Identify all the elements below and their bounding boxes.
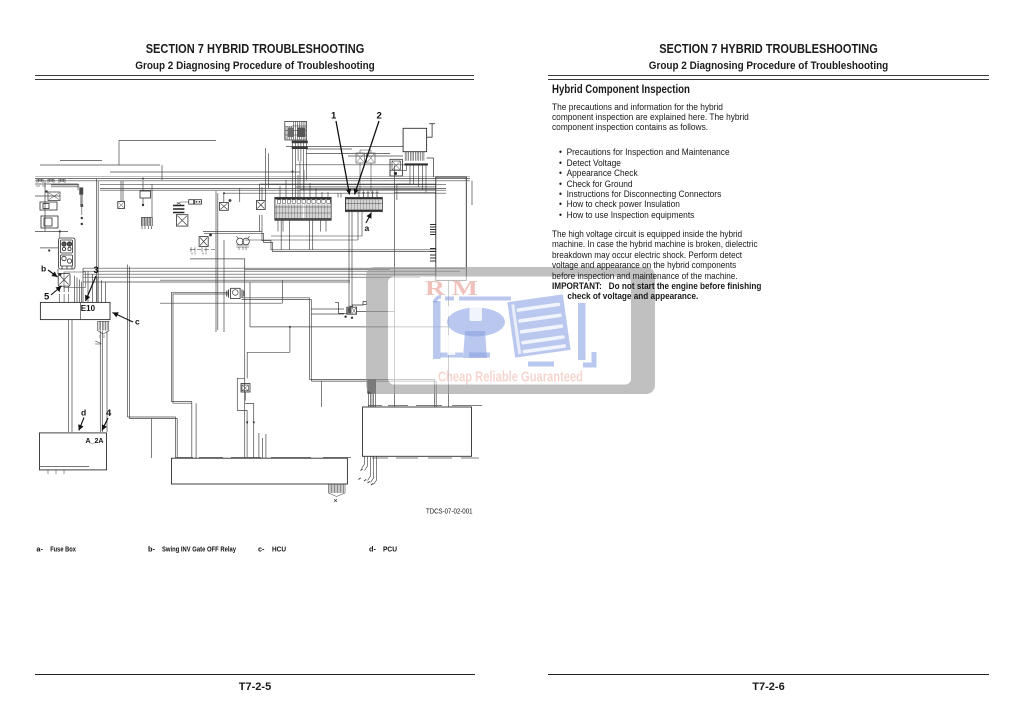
svg-text:a-: a- bbox=[36, 544, 43, 553]
svg-text:HCU: HCU bbox=[272, 544, 286, 553]
svg-text:c-: c- bbox=[258, 544, 265, 553]
svg-text:A_2A: A_2A bbox=[86, 438, 104, 445]
svg-text:PCU: PCU bbox=[383, 544, 397, 553]
svg-text:4: 4 bbox=[106, 408, 112, 419]
svg-text:Swing INV Gate OFF Relay: Swing INV Gate OFF Relay bbox=[162, 544, 237, 553]
svg-text:2: 2 bbox=[377, 111, 382, 122]
svg-text:R M: R M bbox=[425, 276, 478, 300]
svg-text:b-: b- bbox=[148, 544, 155, 553]
svg-text:b: b bbox=[41, 264, 46, 274]
svg-text:d-: d- bbox=[369, 544, 376, 553]
svg-text:Cheap Reliable Guaranteed: Cheap Reliable Guaranteed bbox=[438, 369, 583, 386]
svg-text:E10: E10 bbox=[81, 304, 96, 313]
svg-text:d: d bbox=[81, 408, 86, 418]
svg-text:Fuse Box: Fuse Box bbox=[50, 544, 76, 553]
svg-text:5: 5 bbox=[44, 292, 50, 303]
svg-text:1: 1 bbox=[331, 111, 337, 122]
svg-text:a: a bbox=[365, 223, 370, 233]
svg-text:TDCS-07-02-001: TDCS-07-02-001 bbox=[426, 507, 473, 516]
svg-text:3: 3 bbox=[94, 265, 99, 276]
svg-text:c: c bbox=[135, 317, 140, 327]
